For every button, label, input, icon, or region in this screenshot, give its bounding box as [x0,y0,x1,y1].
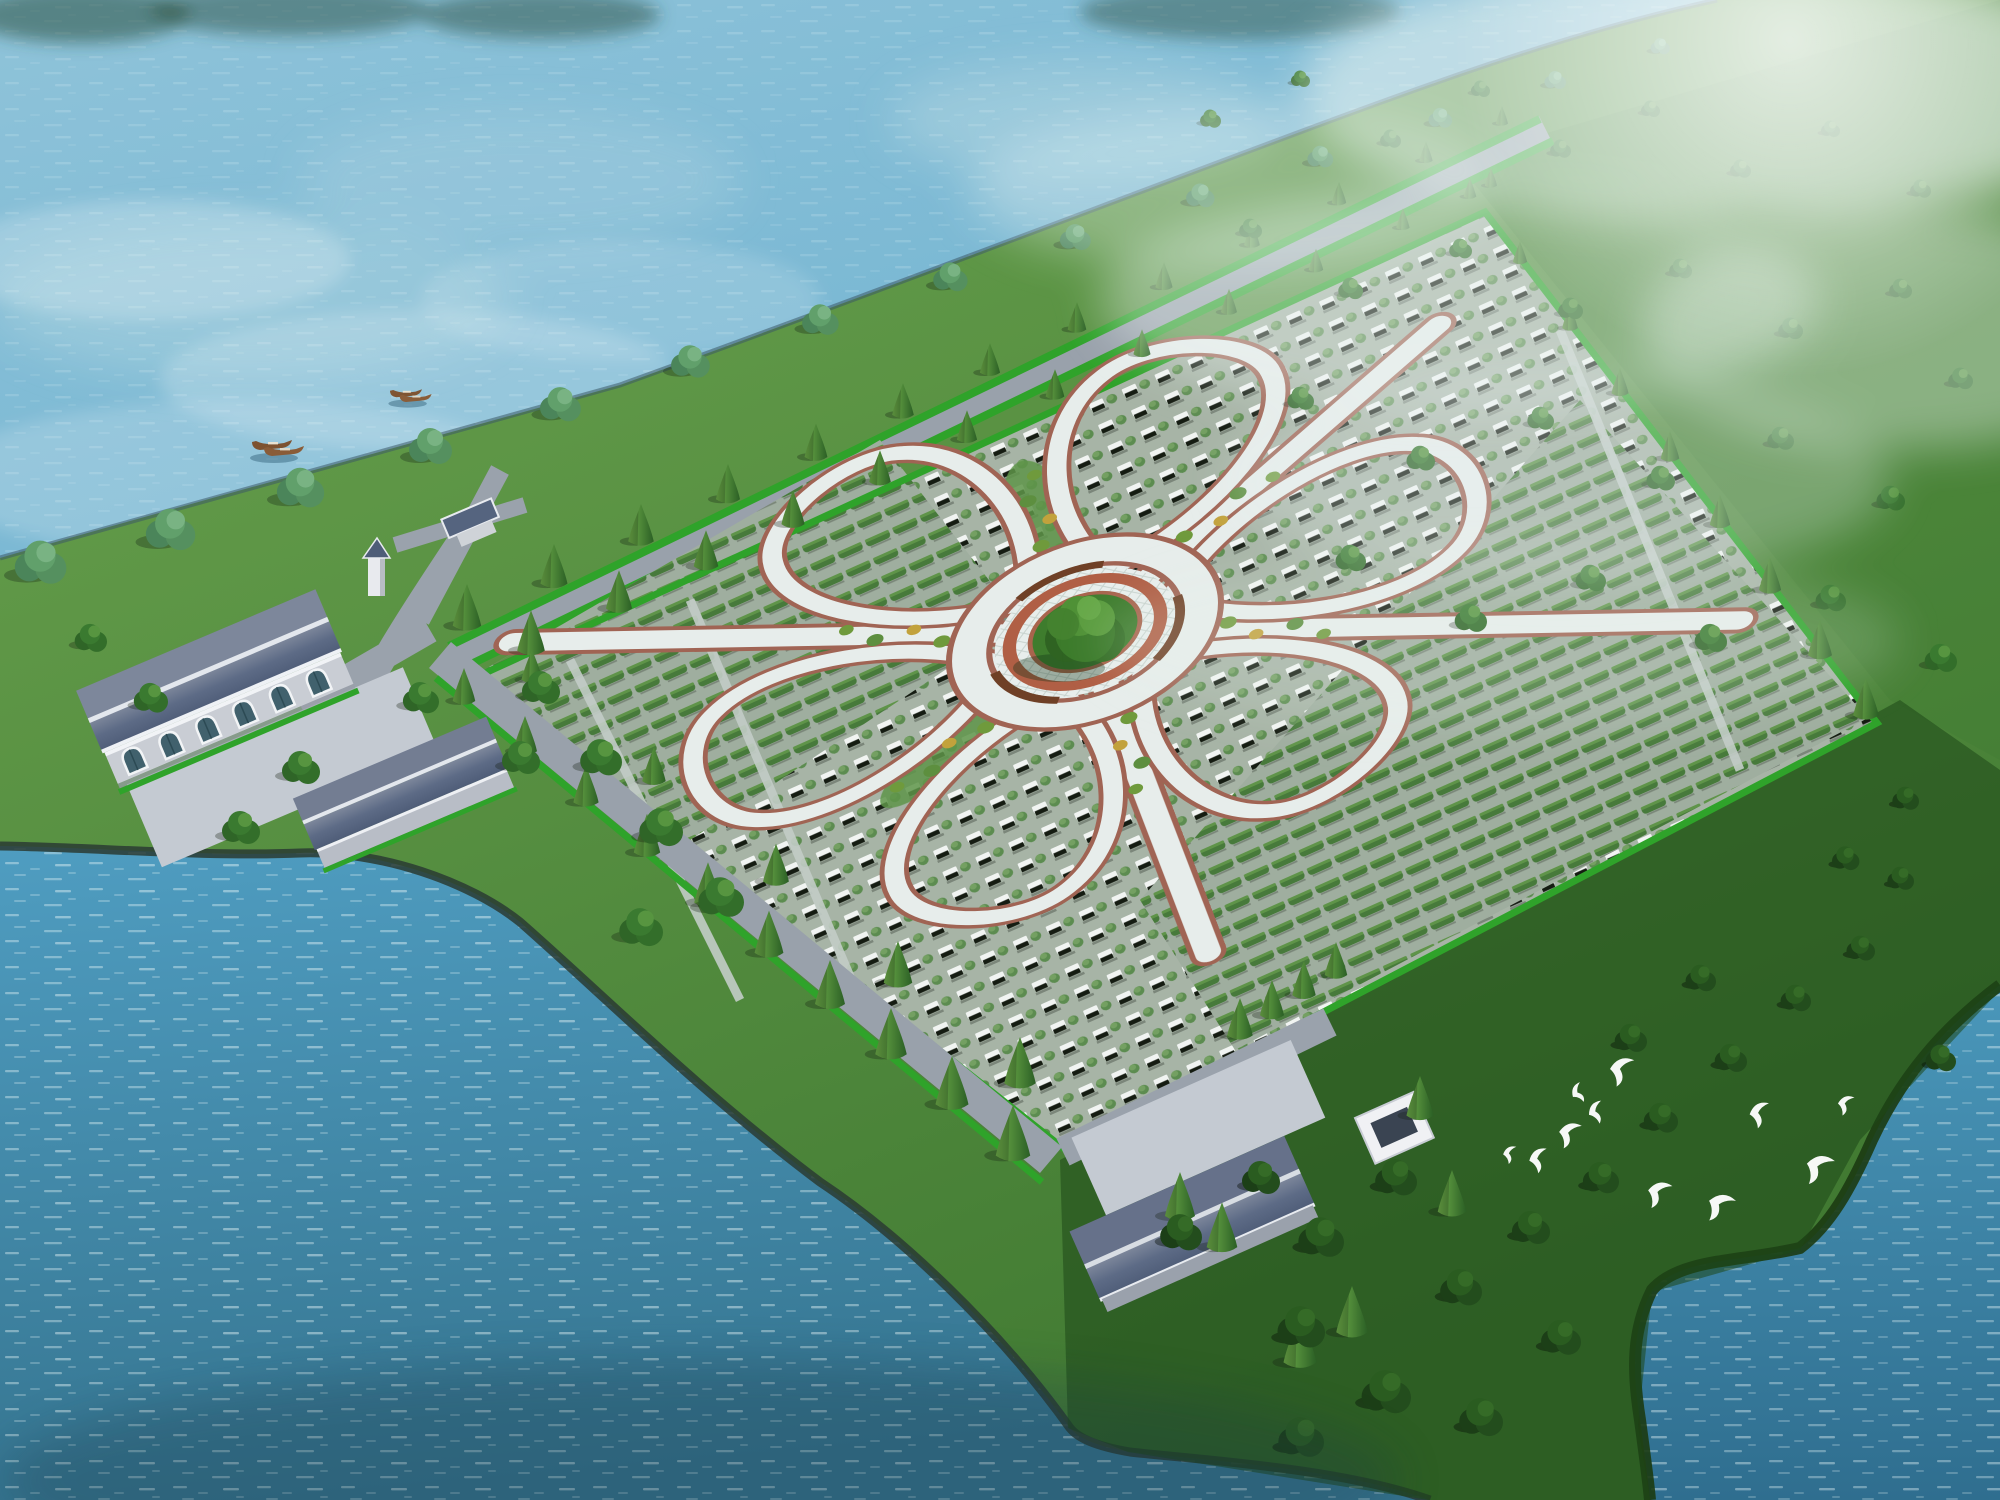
rendering-canvas [0,0,2000,1500]
scene-rendering [0,0,2000,1500]
